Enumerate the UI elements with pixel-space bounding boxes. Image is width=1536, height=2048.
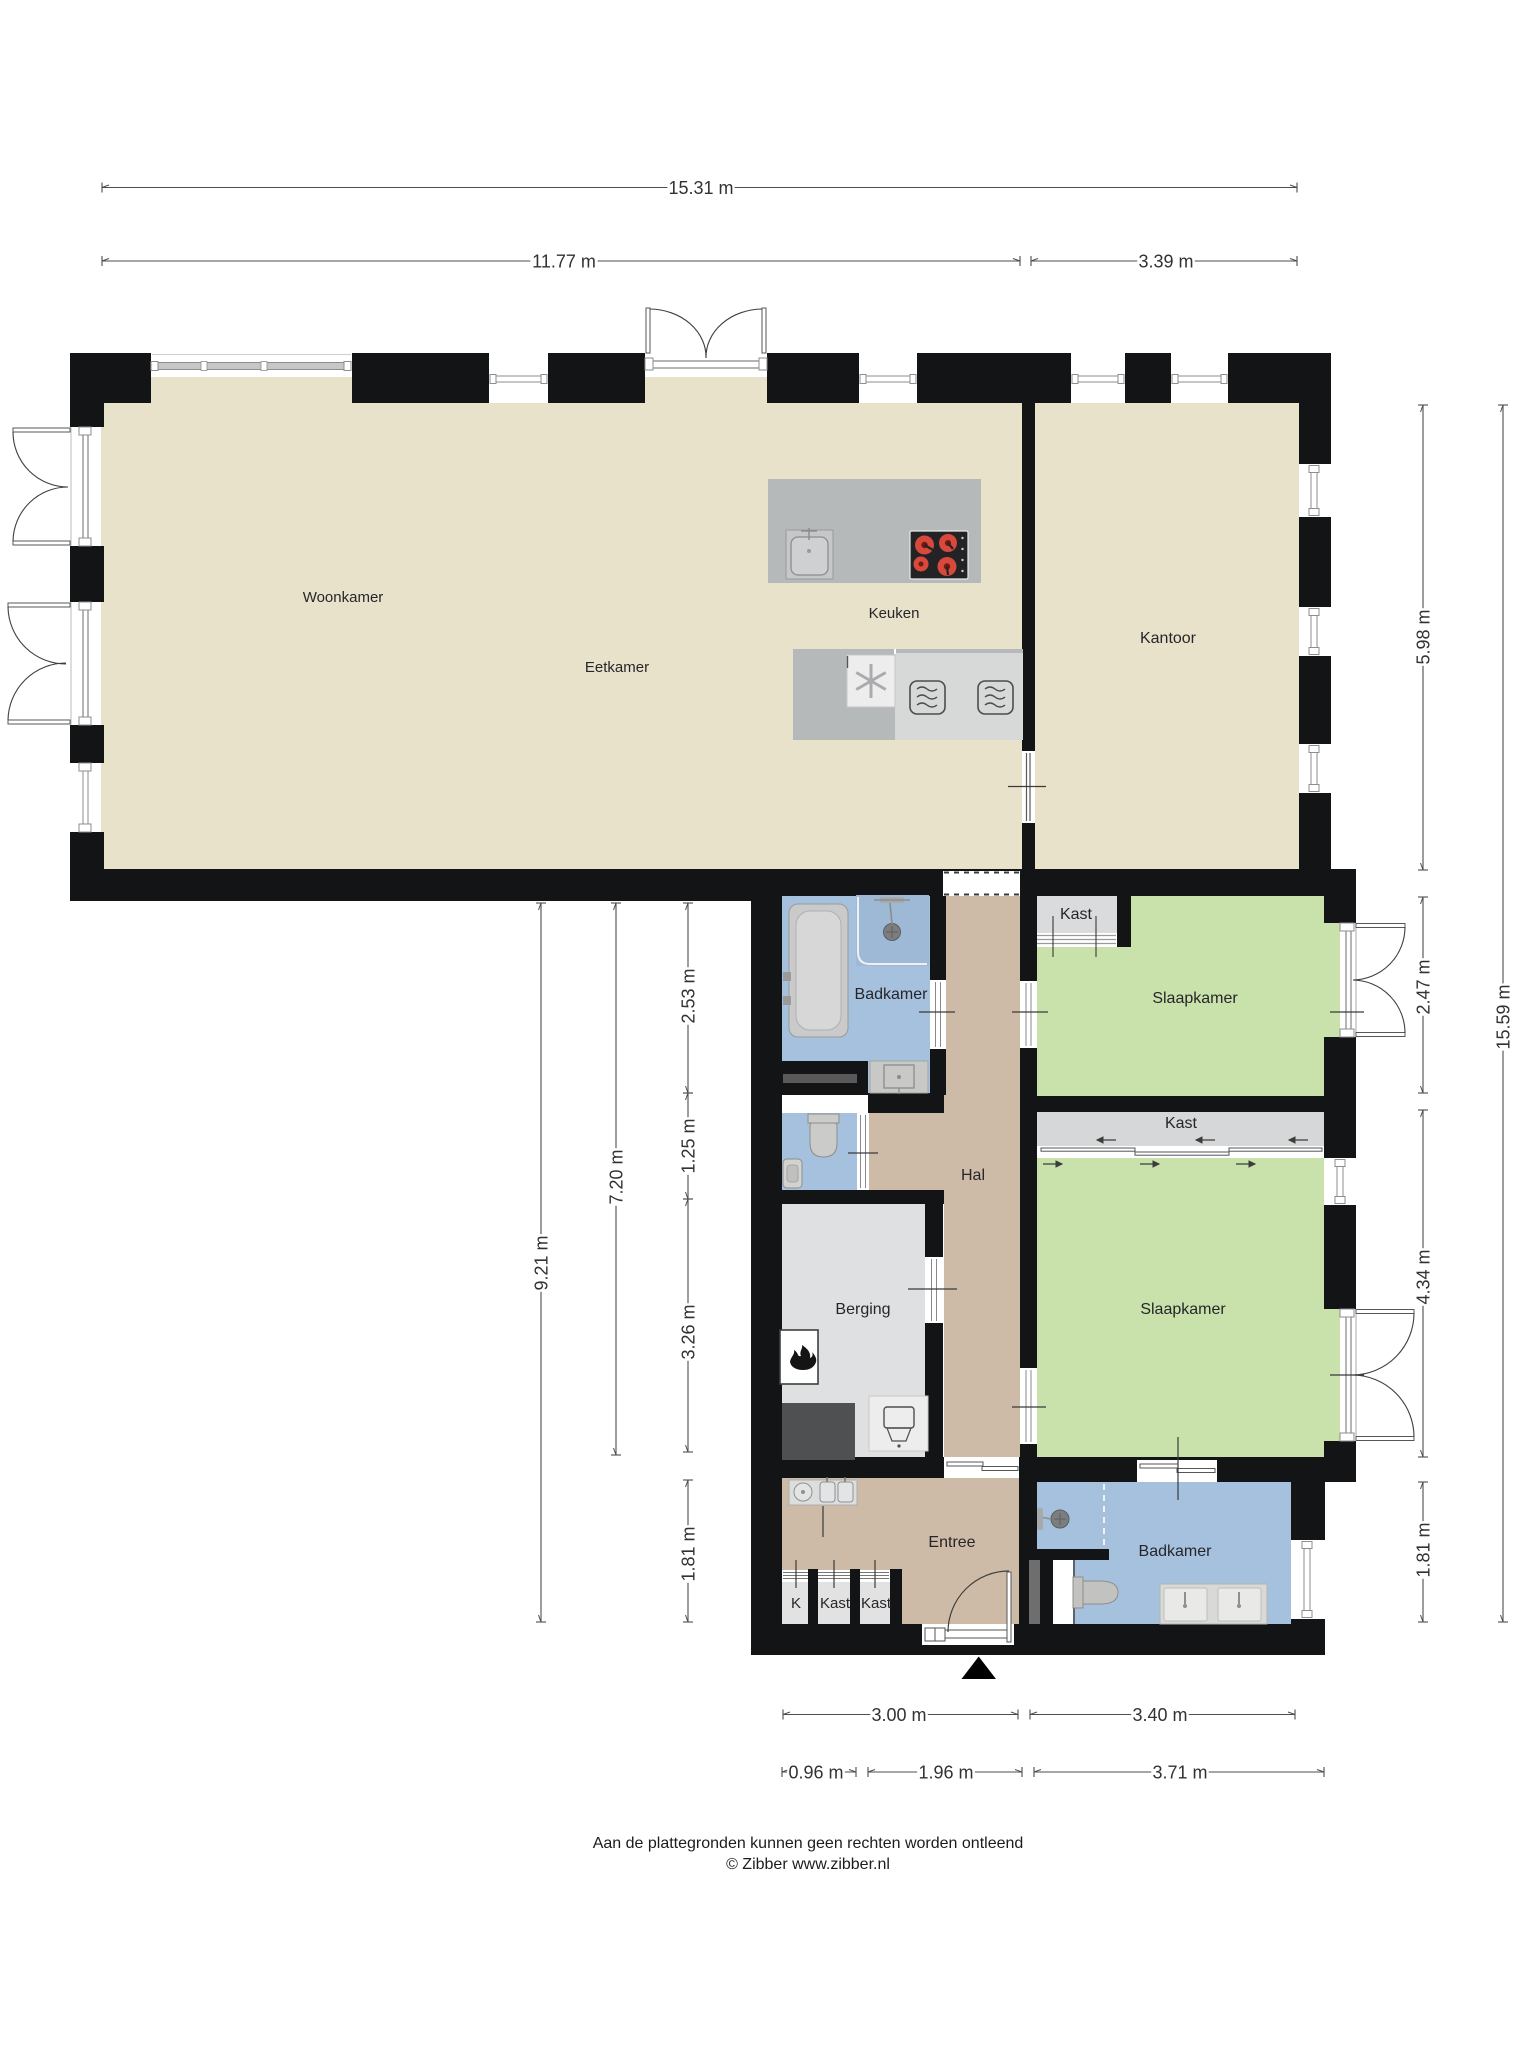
svg-text:3.40 m: 3.40 m [1132, 1705, 1187, 1725]
svg-text:7.20 m: 7.20 m [607, 1149, 627, 1204]
svg-text:4.34 m: 4.34 m [1414, 1249, 1434, 1304]
svg-text:1.81 m: 1.81 m [1414, 1522, 1434, 1577]
svg-text:2.47 m: 2.47 m [1414, 959, 1434, 1014]
svg-text:3.71 m: 3.71 m [1152, 1763, 1207, 1783]
svg-text:2.53 m: 2.53 m [679, 968, 699, 1023]
svg-text:Kast: Kast [820, 1595, 851, 1612]
svg-text:K: K [791, 1595, 801, 1612]
svg-text:Kast: Kast [1165, 1115, 1198, 1132]
svg-text:Slaapkamer: Slaapkamer [1140, 1301, 1226, 1318]
svg-text:11.77 m: 11.77 m [532, 252, 596, 272]
svg-text:0.96 m: 0.96 m [788, 1763, 843, 1783]
svg-text:Kast: Kast [1060, 906, 1093, 923]
svg-text:9.21 m: 9.21 m [532, 1235, 552, 1290]
svg-text:5.98 m: 5.98 m [1414, 609, 1434, 664]
svg-text:Hal: Hal [961, 1167, 985, 1184]
svg-text:© Zibber www.zibber.nl: © Zibber www.zibber.nl [726, 1856, 890, 1873]
svg-text:Berging: Berging [835, 1301, 890, 1318]
svg-text:Aan de plattegronden kunnen ge: Aan de plattegronden kunnen geen rechten… [593, 1835, 1024, 1852]
svg-text:15.31 m: 15.31 m [668, 178, 733, 198]
svg-text:15.59 m: 15.59 m [1494, 984, 1514, 1049]
svg-text:Badkamer: Badkamer [855, 986, 929, 1003]
svg-text:Kantoor: Kantoor [1140, 630, 1197, 647]
svg-text:Woonkamer: Woonkamer [303, 589, 384, 606]
svg-text:1.25 m: 1.25 m [679, 1118, 699, 1173]
svg-text:1.96 m: 1.96 m [918, 1763, 973, 1783]
svg-text:3.00 m: 3.00 m [871, 1705, 926, 1725]
svg-text:Badkamer: Badkamer [1139, 1543, 1213, 1560]
svg-text:3.26 m: 3.26 m [679, 1304, 699, 1359]
svg-text:3.39 m: 3.39 m [1138, 252, 1193, 272]
svg-text:Entree: Entree [928, 1534, 975, 1551]
svg-text:Eetkamer: Eetkamer [585, 659, 649, 676]
svg-text:Slaapkamer: Slaapkamer [1152, 990, 1238, 1007]
svg-text:Kast: Kast [861, 1595, 892, 1612]
svg-text:Keuken: Keuken [869, 605, 920, 622]
svg-text:1.81 m: 1.81 m [679, 1526, 699, 1581]
